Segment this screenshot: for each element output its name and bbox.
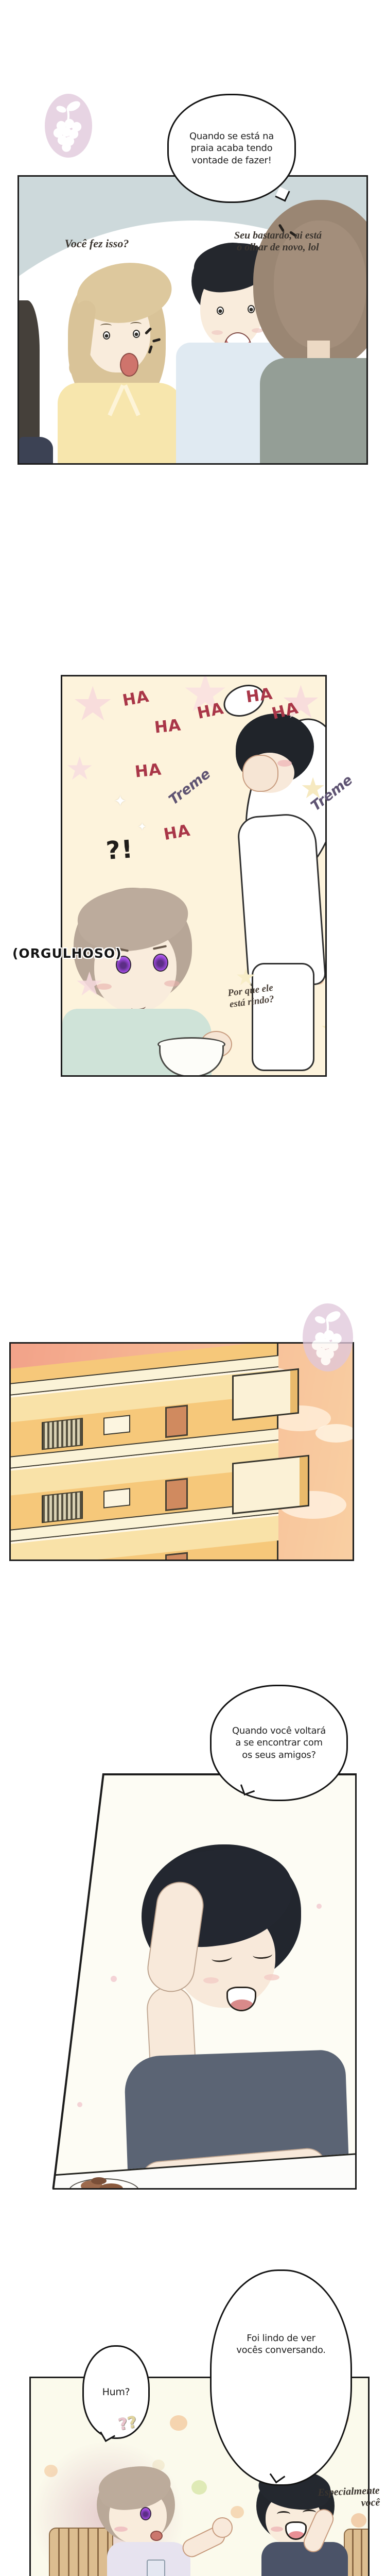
protruding-balcony	[232, 1368, 299, 1421]
dot-decor	[191, 2480, 207, 2495]
white-suit-legs	[252, 963, 314, 1071]
blonde-eye	[133, 330, 140, 338]
ac-grille	[42, 1418, 83, 1450]
backview-shirt	[260, 358, 368, 465]
cloud-shape	[315, 1424, 354, 1443]
happy-closed-eye	[277, 2511, 290, 2517]
wooden-chair	[49, 2528, 113, 2576]
doodle-question-marks: ??	[117, 2413, 138, 2434]
dot-decor	[111, 1976, 117, 1982]
aside-text-especialmente: Especialmente você	[292, 2485, 380, 2512]
flower-watermark-icon	[303, 1302, 353, 1374]
panel-border-right	[355, 1773, 357, 2190]
sfx-ha: HA	[153, 716, 182, 737]
food	[91, 2177, 107, 2184]
star-decor-icon: ★	[75, 968, 104, 1001]
side-text-voce-fez: Você fez isso?	[45, 237, 148, 250]
sparkle-icon: ✦	[137, 822, 147, 833]
sparkle-icon: ✦	[114, 794, 127, 809]
chewing-mouth	[150, 2531, 163, 2541]
dot-decor	[317, 1904, 322, 1909]
caption-orgulhoso: (ORGULHOSO)	[12, 946, 122, 961]
panel-laughing: ★ ★ ★ ★ ✦ ✦ ★ ★ ★ ★	[61, 675, 327, 1077]
mouth-inner	[230, 1999, 254, 2011]
purple-eye	[153, 954, 168, 972]
panel-man-smiling	[49, 1772, 358, 2191]
ac-grille	[42, 1491, 83, 1523]
balcony-box	[103, 1488, 130, 1508]
laughing-guy-blush	[277, 760, 292, 767]
star-decor-icon: ★	[72, 681, 114, 728]
hand-covering-face	[242, 755, 278, 792]
sfx-surprise: ?!	[105, 835, 135, 866]
panel-building-sunset	[9, 1342, 354, 1561]
speech-bubble-hum: Hum?	[82, 2345, 150, 2439]
flower-watermark-icon	[45, 94, 92, 159]
balcony-box	[103, 1415, 130, 1435]
middle-blush	[212, 330, 223, 335]
blush	[271, 2527, 283, 2532]
speech-bubble-amigos: Quando você voltará a se encontrar com o…	[210, 1685, 348, 1801]
balcony-door	[165, 1552, 188, 1561]
speech-bubble-beach: Quando se está na praia acaba tendo vont…	[167, 94, 296, 203]
sfx-ha: HA	[245, 685, 274, 707]
webtoon-page: Quando se está na praia acaba tendo vont…	[0, 0, 386, 2576]
dot-decor	[77, 2102, 82, 2107]
chibi-left-fist	[212, 2517, 233, 2538]
panel-border-bottom	[52, 2188, 357, 2190]
dot-decor	[170, 2415, 187, 2431]
blonde-open-mouth	[120, 353, 138, 377]
blonde-brow	[100, 324, 112, 328]
star-decor-icon: ★	[319, 1006, 327, 1056]
milk-glass	[147, 2560, 165, 2576]
middle-eye	[248, 305, 255, 313]
dot-decor	[351, 2513, 366, 2528]
blush	[264, 1974, 279, 1980]
protruding-balcony	[232, 1455, 309, 1515]
middle-eye	[217, 307, 224, 315]
blonde-brow	[130, 322, 142, 327]
open-laugh-mouth	[285, 2521, 307, 2540]
purple-eye	[140, 2507, 151, 2520]
blush	[164, 980, 180, 987]
blush	[114, 2527, 128, 2532]
dot-decor	[231, 2506, 244, 2518]
table-surface	[42, 2152, 375, 2242]
open-smile	[226, 1987, 256, 2011]
panel-beach-talk	[17, 175, 368, 465]
balcony-door	[165, 1404, 188, 1438]
building-structure	[11, 1342, 278, 1561]
star-decor-icon: ★	[65, 753, 94, 785]
sfx-ha: HA	[134, 760, 162, 781]
balcony-door	[165, 1478, 188, 1511]
speech-bubble-praise: Foi lindo de ver vocês conversando.	[210, 2269, 352, 2486]
edge-person-shirt	[19, 437, 53, 465]
blonde-eye	[103, 331, 110, 340]
blush	[203, 1977, 219, 1984]
side-text-seu-bastardo: Seu bastardo, ai está o olhar de novo, l…	[201, 230, 355, 253]
